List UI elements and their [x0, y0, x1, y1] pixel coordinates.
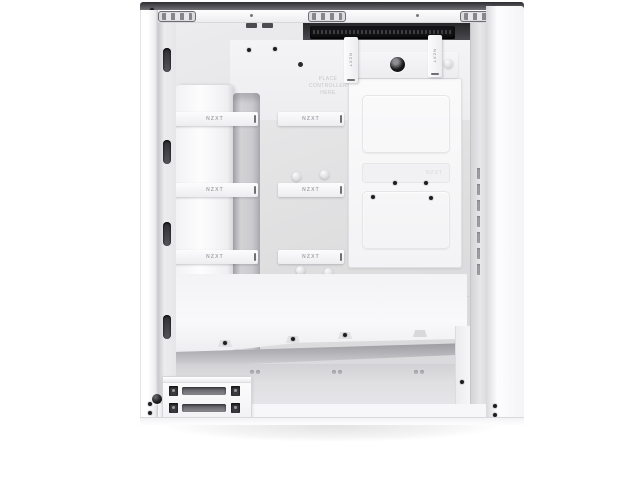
screw-icon — [223, 341, 227, 345]
top-vent-cluster — [308, 11, 346, 22]
screw-icon — [429, 196, 433, 200]
thumbscrew-knob[interactable] — [152, 394, 162, 404]
screw-icon — [460, 380, 464, 384]
vent-bars-icon — [162, 13, 192, 20]
strap-tick — [254, 186, 256, 194]
screw-icon — [424, 181, 428, 185]
screw-icon — [298, 62, 303, 67]
standoff-peg — [296, 266, 305, 275]
strap-tick — [347, 79, 355, 81]
strap-tick — [431, 73, 439, 75]
strap-tick — [254, 253, 256, 261]
ssd-mounting-plate: NZXT — [348, 78, 462, 268]
rear-vent-slot — [477, 200, 480, 211]
latch-pin — [234, 406, 237, 409]
strap-label: NZXT — [206, 116, 224, 122]
ssd-bay-outline — [362, 191, 450, 249]
tray-latch-hole — [169, 403, 178, 413]
rivet-pair — [414, 370, 426, 374]
cable-routing-slot — [163, 140, 171, 164]
strap-tick — [340, 253, 342, 261]
psu-shroud-cover — [176, 274, 467, 354]
standoff-peg — [292, 172, 301, 181]
strap-tick — [340, 115, 342, 123]
panel-latch — [262, 23, 273, 28]
strap-label: NZXT — [302, 116, 320, 122]
rivet — [256, 370, 260, 374]
tray-latch-hole — [169, 386, 178, 396]
cable-strap[interactable]: NZXT — [176, 183, 258, 197]
screw-icon — [291, 337, 295, 341]
panel-latch — [246, 23, 257, 28]
cable-strap[interactable]: NZXT — [278, 112, 344, 126]
tray-grip-slot — [182, 387, 226, 395]
rear-vent-slot — [477, 232, 480, 243]
case-top-edge — [140, 2, 524, 10]
rear-vent-slot — [477, 216, 480, 227]
hdd-drive-cage — [162, 376, 252, 420]
cable-strap[interactable]: NZXT — [278, 183, 344, 197]
plate-slot-band: NZXT — [362, 163, 450, 183]
latch-pin — [234, 389, 237, 392]
grommet-hole-icon — [390, 57, 405, 72]
note-line: HERE — [302, 90, 354, 97]
strap-tick — [254, 115, 256, 123]
case-top-rail — [140, 10, 524, 23]
note-line: CONTROLLER — [302, 83, 354, 90]
ssd-bay-outline — [362, 95, 450, 153]
rear-frame-strip — [470, 23, 486, 404]
screw-icon — [250, 14, 253, 17]
front-panel-edge — [140, 10, 158, 419]
strap-label: NZXT — [206, 254, 224, 260]
front-frame-strip — [158, 23, 176, 404]
screw-icon — [416, 14, 419, 17]
standoff-peg — [320, 170, 329, 179]
strap-label: NZXT — [302, 254, 320, 260]
screw-icon — [493, 404, 497, 408]
cable-strap[interactable]: NZXT — [176, 250, 258, 264]
tray-latch-hole — [231, 386, 240, 396]
rear-vent-slot — [477, 168, 480, 179]
cable-routing-slot — [163, 222, 171, 246]
strap-label: NZXT — [302, 187, 320, 193]
rivet — [250, 370, 254, 374]
cable-routing-slot — [163, 315, 171, 339]
cable-routing-slot — [163, 48, 171, 72]
mount-clip — [413, 330, 427, 337]
rivet — [332, 370, 336, 374]
screw-icon — [371, 195, 375, 199]
product-photo-stage: PLACE CONTROLLER HERE NZXT — [0, 0, 640, 480]
case-bottom-rail — [140, 417, 524, 425]
screw-icon — [247, 48, 251, 52]
cable-strap-vertical[interactable]: NZXT — [344, 37, 358, 83]
screw-icon — [273, 47, 277, 51]
screw-icon — [393, 181, 397, 185]
psu-rear-wall — [455, 326, 470, 404]
cable-strap[interactable]: NZXT — [278, 250, 344, 264]
rivet-pair — [332, 370, 344, 374]
tray-latch-hole — [231, 403, 240, 413]
rivet — [420, 370, 424, 374]
drive-tray[interactable] — [169, 385, 247, 397]
standoff-peg — [444, 59, 453, 68]
tray-grip-slot — [182, 404, 226, 412]
latch-pin — [172, 406, 175, 409]
drive-tray[interactable] — [169, 402, 247, 414]
cable-strap-vertical[interactable]: NZXT — [428, 35, 442, 77]
vent-bars-icon — [312, 13, 342, 20]
top-vent-cluster — [158, 11, 196, 22]
perforation-texture — [313, 30, 452, 34]
strap-label: NZXT — [433, 49, 438, 63]
strap-label: NZXT — [349, 53, 354, 67]
screw-icon — [148, 411, 152, 415]
embossed-brand-logo: NZXT — [426, 170, 443, 176]
rear-vent-slot — [477, 264, 480, 275]
rear-vent-slot — [477, 184, 480, 195]
rivet — [414, 370, 418, 374]
case-interior: PLACE CONTROLLER HERE NZXT — [176, 23, 470, 404]
screw-icon — [148, 402, 152, 406]
rivet-pair — [250, 370, 262, 374]
pc-case: PLACE CONTROLLER HERE NZXT — [140, 2, 524, 425]
strap-label: NZXT — [206, 187, 224, 193]
rear-vent-slot — [477, 248, 480, 259]
strap-tick — [340, 186, 342, 194]
cage-top-face — [163, 377, 251, 383]
rivet — [338, 370, 342, 374]
latch-pin — [172, 389, 175, 392]
screw-icon — [343, 333, 347, 337]
rear-panel-edge — [486, 6, 524, 421]
cable-strap[interactable]: NZXT — [176, 112, 258, 126]
